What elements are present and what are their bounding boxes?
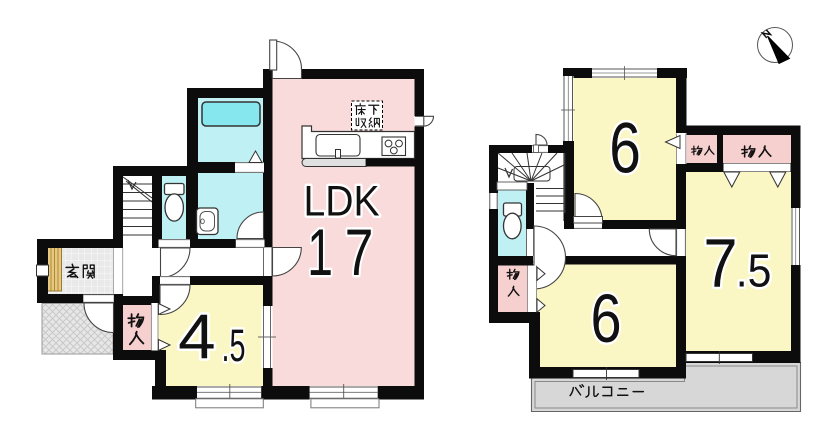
svg-text:6: 6: [609, 108, 641, 188]
svg-text:7: 7: [345, 215, 374, 290]
svg-text:7: 7: [703, 224, 737, 301]
svg-text:.5: .5: [222, 322, 246, 372]
svg-text:.5: .5: [736, 246, 772, 297]
svg-text:1: 1: [307, 216, 333, 290]
svg-text:4: 4: [178, 301, 215, 371]
svg-text:6: 6: [590, 280, 621, 357]
